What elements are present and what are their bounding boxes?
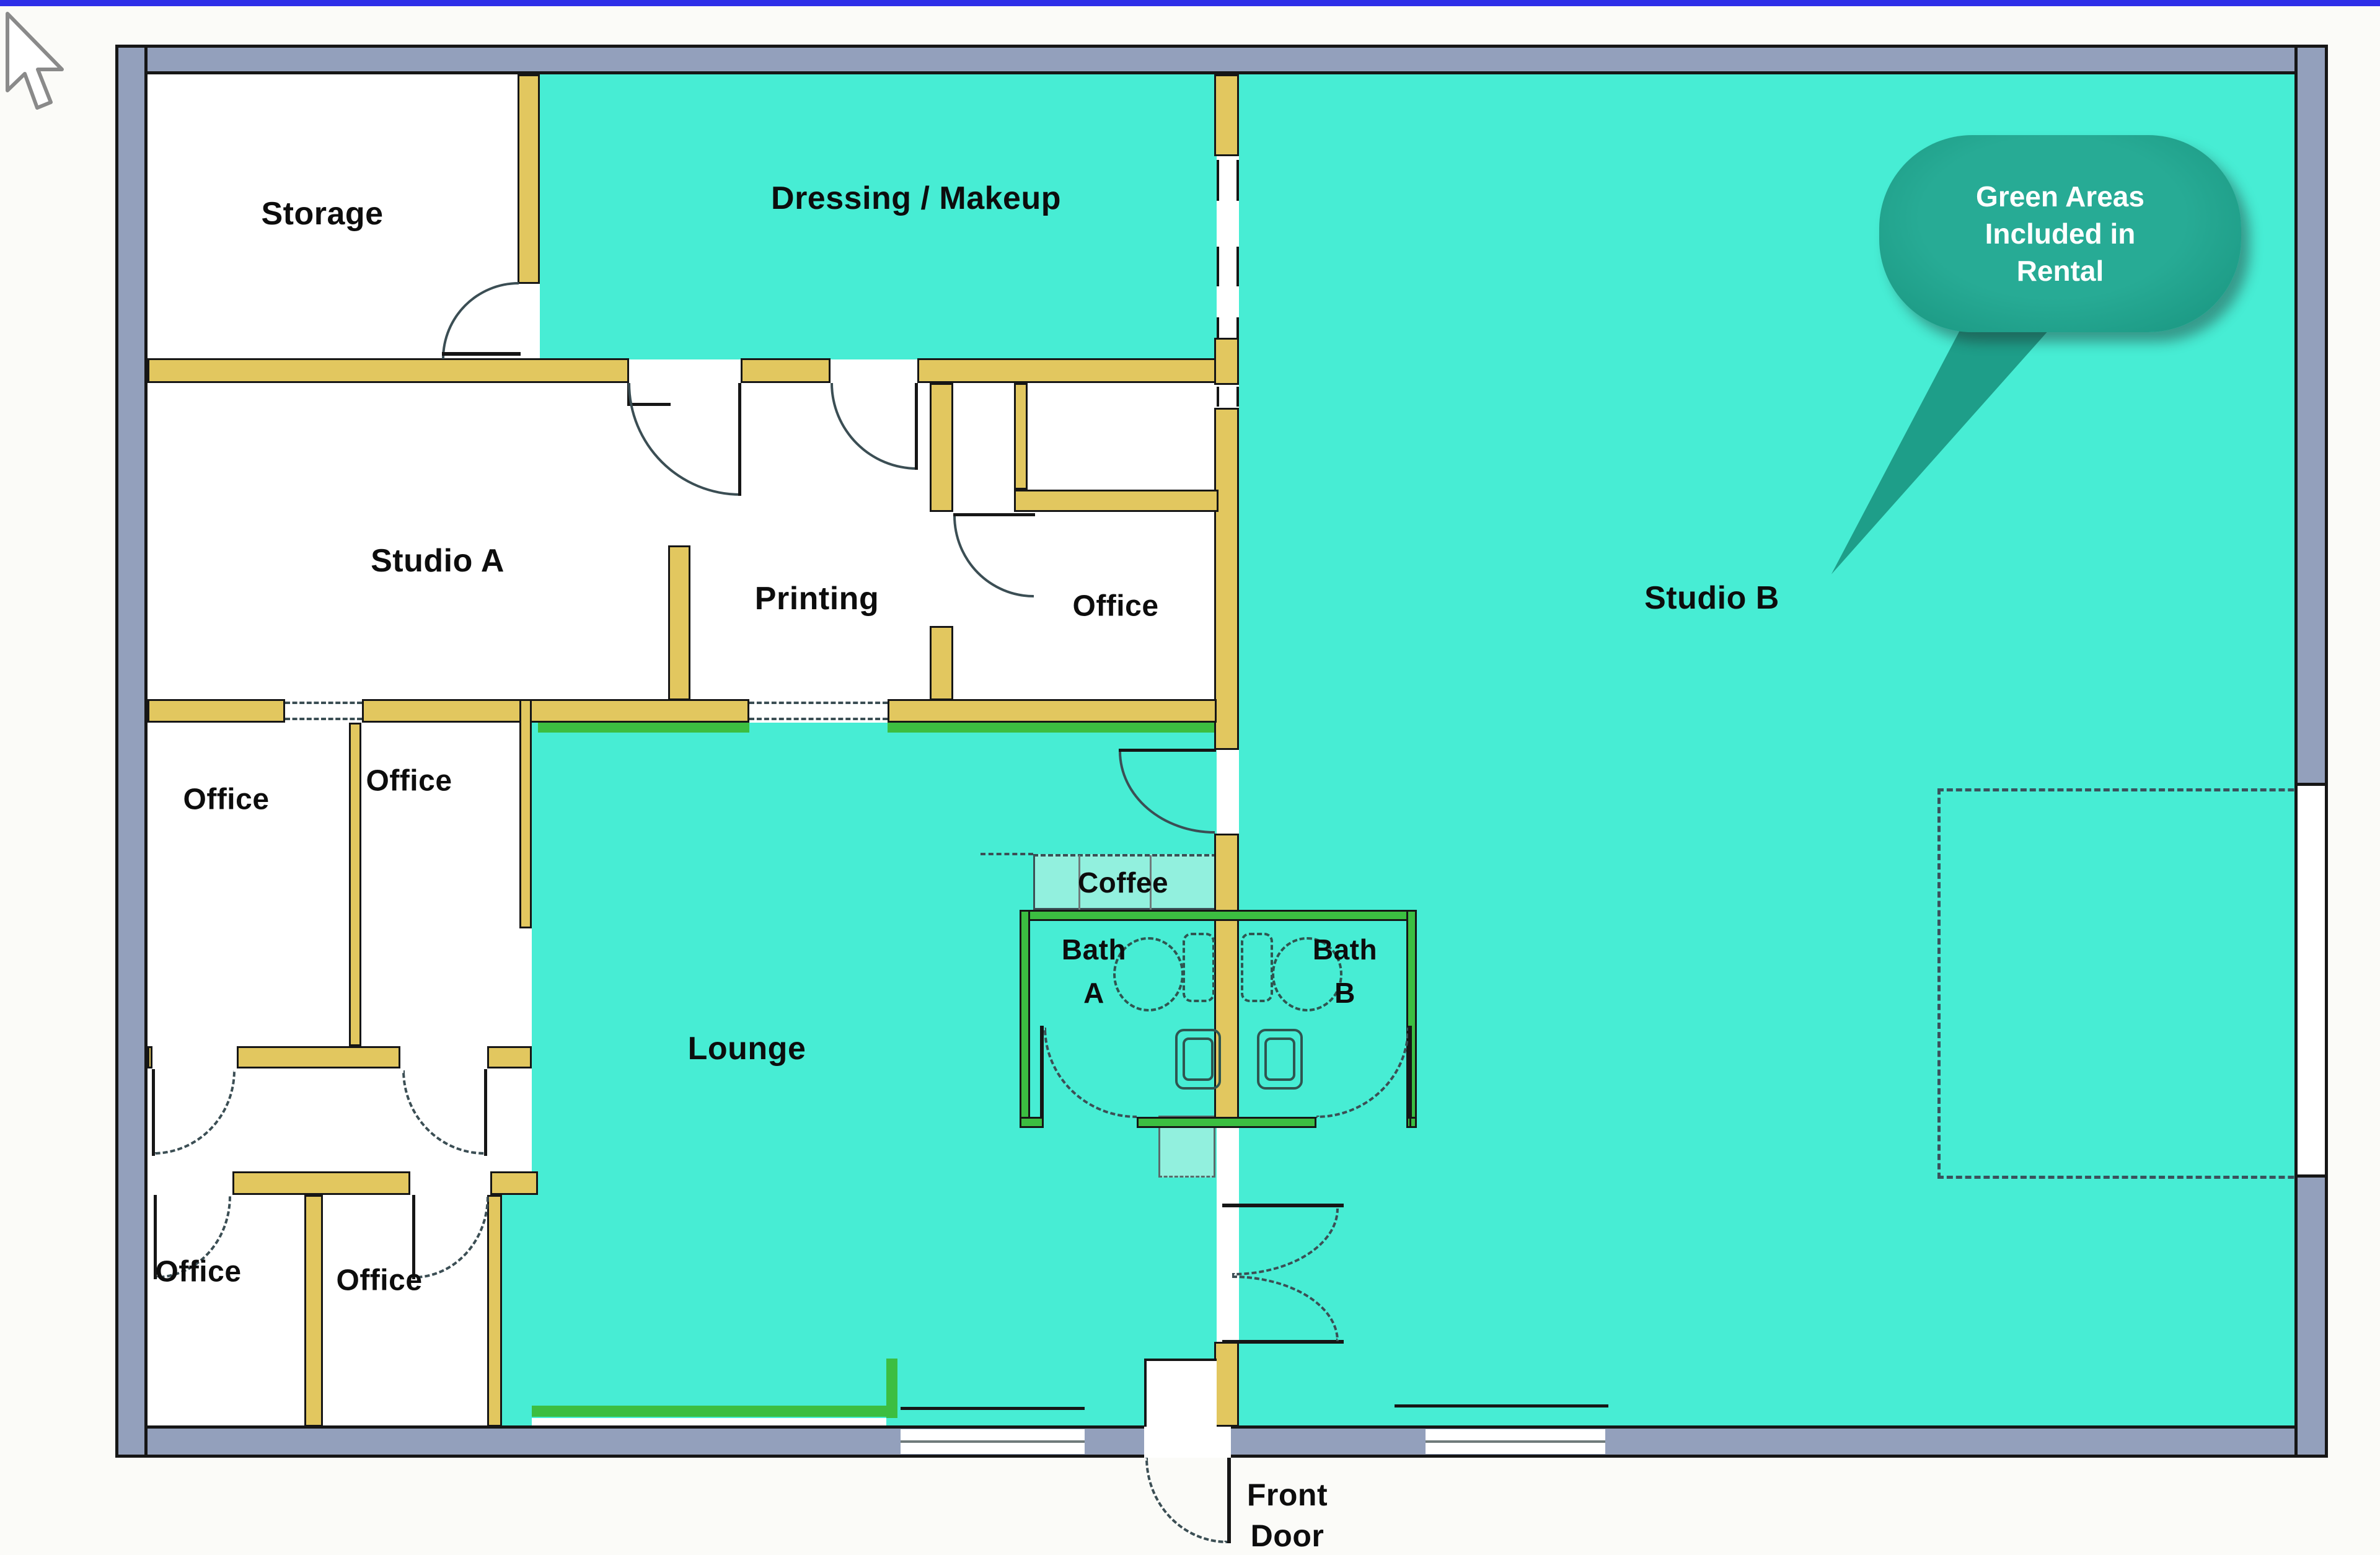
callout-text-line2: Included in — [1985, 215, 2136, 252]
room-label-office-4: Office — [336, 1264, 422, 1298]
door-leaf-storage — [442, 352, 521, 356]
mouse-cursor-icon — [2, 11, 64, 110]
opening-frame-tick — [1236, 387, 1239, 407]
wall-office-d-right — [487, 1195, 502, 1427]
wall-h2 — [362, 699, 749, 723]
door-leaf-lounge — [1119, 749, 1216, 752]
green-wall-strip — [532, 1406, 886, 1417]
front-window-right-sill — [1395, 1404, 1608, 1407]
wall-h2 — [148, 699, 285, 723]
wall-central — [1214, 1342, 1239, 1427]
wall-h1 — [741, 358, 831, 383]
wall-h3 — [148, 1046, 152, 1068]
right-wall-opening-edge — [2298, 1174, 2325, 1178]
wall-central — [1214, 408, 1239, 750]
dashed-opening — [285, 702, 362, 707]
opening-frame-tick — [1236, 160, 1239, 201]
entry-vestibule-edge — [1144, 1359, 1147, 1427]
toilet-tank — [1183, 933, 1215, 1002]
entry-vestibule-edge — [1144, 1359, 1217, 1361]
green-wall-stub — [886, 1359, 897, 1418]
wall-office-corner — [1014, 383, 1028, 490]
room-label-coffee: Coffee — [1078, 866, 1168, 899]
wall-bath-top — [1020, 910, 1417, 921]
callout-text-line1: Green Areas — [1976, 178, 2144, 215]
front-door-label-line1: Front — [1247, 1477, 1328, 1513]
room-label-office-2: Office — [366, 764, 452, 798]
opening-frame-tick — [1236, 317, 1239, 338]
wall-h4 — [232, 1171, 410, 1195]
callout-bubble: Green Areas Included in Rental — [1879, 135, 2241, 332]
opening-frame-tick — [1217, 387, 1219, 407]
toilet-tank — [1241, 933, 1273, 1002]
front-window-left-sill — [901, 1407, 1085, 1410]
wall-h2 — [888, 699, 1217, 723]
wall-office-top — [1014, 490, 1219, 512]
window-top-border — [0, 0, 2380, 6]
dashed-opening — [749, 702, 888, 707]
door-leaf-office-mid — [953, 513, 1035, 516]
entry-vestibule-floor — [1145, 1359, 1217, 1427]
wall-office-cd-divider — [304, 1195, 323, 1427]
door-leaf-office-2 — [484, 1069, 487, 1156]
wall-printing-office-divider — [930, 383, 953, 512]
green-wall-strip — [538, 723, 749, 733]
wall-lounge-left — [519, 699, 532, 928]
room-label-lounge: Lounge — [688, 1030, 806, 1067]
right-wall-opening-edge — [2298, 783, 2325, 786]
studio-b-dashed-zone — [1937, 788, 2322, 1179]
front-door-leaf — [1227, 1458, 1231, 1543]
front-door-label-line2: Door — [1251, 1518, 1324, 1554]
door-leaf-bath-b — [1408, 1026, 1412, 1119]
lounge-window-line — [532, 1418, 886, 1425]
room-label-storage: Storage — [261, 195, 383, 232]
front-door-opening — [1144, 1427, 1231, 1458]
dashed-opening — [749, 718, 888, 723]
room-label-dressing: Dressing / Makeup — [771, 180, 1061, 217]
room-lounge-floor-strip — [502, 1195, 539, 1427]
callout-text-line3: Rental — [2017, 252, 2104, 289]
wall-h1 — [917, 358, 1217, 383]
outer-wall-right — [2294, 45, 2328, 1458]
room-label-studio-b: Studio B — [1644, 579, 1779, 617]
wall-office-ab-divider — [349, 723, 361, 1046]
wall-central — [1214, 338, 1239, 385]
green-wall-strip — [888, 723, 1217, 733]
wall-bath-left — [1020, 910, 1030, 1128]
door-leaf-office-1 — [152, 1069, 155, 1156]
opening-frame-tick — [1236, 247, 1239, 286]
room-label-office-3: Office — [155, 1255, 241, 1289]
room-label-bath-b: Bath — [1313, 933, 1377, 966]
wall-bath-bottom — [1137, 1117, 1316, 1128]
dashed-opening — [285, 718, 362, 723]
front-door-arc — [1145, 1458, 1227, 1543]
room-label-bath-b-letter: B — [1334, 976, 1355, 1010]
wall-storage-divider — [518, 74, 540, 284]
wall-h3 — [237, 1046, 400, 1068]
coffee-counter-dashed-edge — [981, 853, 1033, 858]
room-label-printing: Printing — [755, 580, 879, 617]
outer-wall-left — [115, 45, 148, 1458]
door-leaf-studio-a — [738, 383, 741, 496]
wall-studio-a-right — [668, 545, 690, 700]
front-window-right-line — [1426, 1440, 1605, 1443]
wall-h3 — [487, 1046, 532, 1068]
outer-wall-top — [115, 45, 2328, 74]
opening-frame-tick — [1217, 160, 1219, 201]
sink-basin — [1183, 1037, 1214, 1081]
wall-central — [1214, 74, 1239, 156]
door-leaf-bath-a — [1040, 1026, 1044, 1119]
double-door-frame — [1222, 1204, 1344, 1207]
wall-h4 — [490, 1171, 538, 1195]
room-dressing-floor — [540, 74, 1217, 359]
right-wall-opening — [2298, 785, 2325, 1176]
room-label-office-1: Office — [183, 783, 269, 817]
room-label-bath-a: Bath — [1062, 933, 1126, 966]
room-label-studio-a: Studio A — [371, 542, 505, 579]
opening-frame-tick — [1217, 247, 1219, 286]
room-label-bath-a-letter: A — [1083, 976, 1104, 1010]
wall-printing-office-divider — [930, 626, 953, 700]
door-leaf-printing — [915, 383, 918, 470]
opening-frame-tick — [1217, 317, 1219, 338]
sink-basin — [1264, 1037, 1295, 1081]
room-label-office-mid: Office — [1072, 589, 1158, 623]
floor-plan-viewer: Storage Dressing / Makeup Studio A Print… — [0, 0, 2380, 1555]
wall-h1 — [148, 358, 629, 383]
front-window-left-line — [901, 1440, 1085, 1443]
